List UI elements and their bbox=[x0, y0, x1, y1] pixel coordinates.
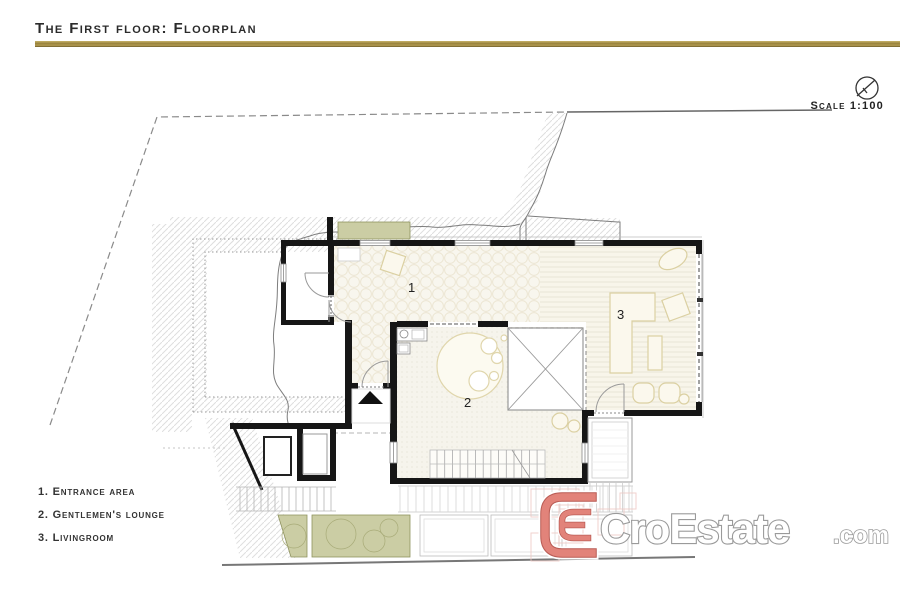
north-indicator-icon bbox=[856, 77, 878, 99]
legend: 1. Entrance area 2. Gentlemen's lounge 3… bbox=[38, 486, 165, 555]
scale-label: Scale 1:100 bbox=[810, 100, 884, 112]
room-label-livingroom: 3 bbox=[617, 307, 624, 322]
stairs-interior bbox=[430, 450, 545, 478]
room-label-lounge: 2 bbox=[464, 395, 471, 410]
room-label-entrance: 1 bbox=[408, 280, 415, 295]
legend-item-entrance: 1. Entrance area bbox=[38, 486, 165, 498]
legend-item-lounge: 2. Gentlemen's lounge bbox=[38, 509, 165, 521]
watermark-tld-text: .com bbox=[833, 522, 889, 549]
entrance-arrow-icon bbox=[358, 391, 383, 404]
floorplan-page: { "header": { "title": "The First floor:… bbox=[0, 0, 900, 600]
void-skylight bbox=[508, 328, 586, 410]
watermark-logo: CroEstate .com bbox=[531, 489, 889, 561]
watermark-brand-text: CroEstate bbox=[600, 505, 789, 552]
legend-item-livingroom: 3. Livingroom bbox=[38, 532, 165, 544]
